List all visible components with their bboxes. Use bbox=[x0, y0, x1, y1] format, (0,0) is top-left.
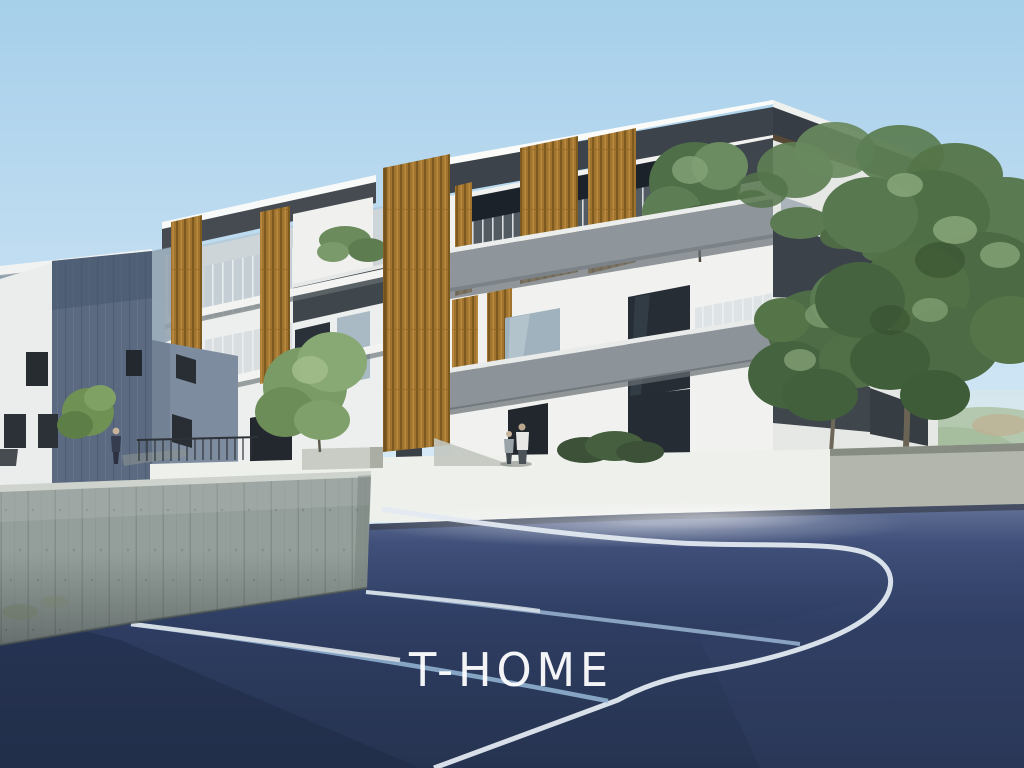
window bbox=[172, 414, 192, 448]
window bbox=[126, 350, 142, 376]
real-estate-render-image: T-HOME bbox=[0, 0, 1024, 768]
person-white-jacket bbox=[516, 432, 529, 450]
parked-car-roof bbox=[0, 449, 18, 466]
moss bbox=[2, 604, 38, 620]
window bbox=[4, 414, 26, 448]
window bbox=[38, 414, 58, 448]
watermark-logo: T-HOME bbox=[408, 643, 613, 697]
window bbox=[26, 352, 48, 386]
render-canvas: T-HOME bbox=[0, 0, 1024, 768]
right-wing bbox=[437, 100, 779, 466]
wood-slat-spine bbox=[383, 154, 450, 452]
